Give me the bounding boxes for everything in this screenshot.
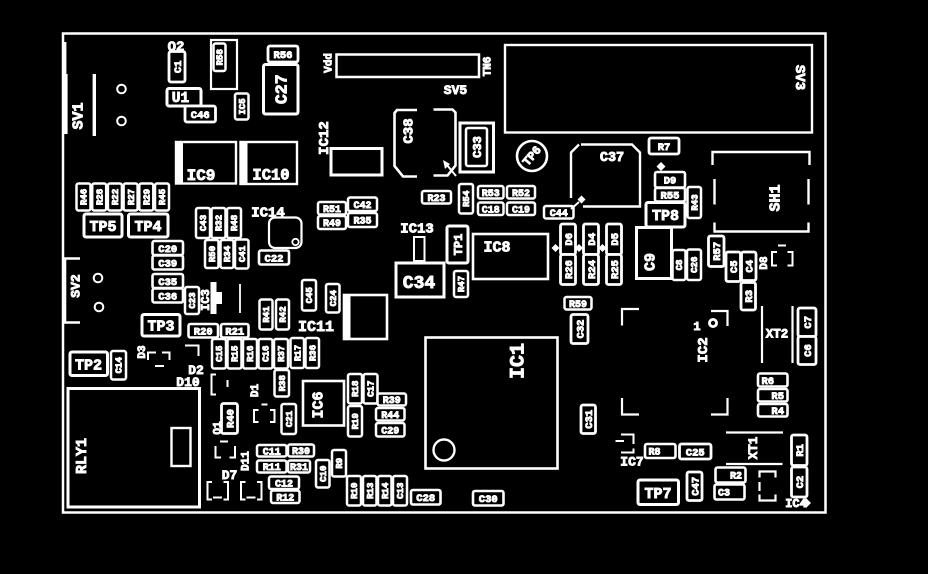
svg-text:R30: R30: [292, 447, 310, 458]
svg-text:C32: C32: [575, 320, 587, 339]
svg-text:C20: C20: [158, 244, 177, 256]
svg-text:R20: R20: [194, 327, 213, 339]
svg-text:C27: C27: [273, 74, 292, 104]
svg-text:C31: C31: [584, 410, 596, 429]
svg-text:C22: C22: [265, 253, 284, 265]
svg-text:R2: R2: [730, 472, 742, 483]
svg-text:IC9: IC9: [187, 167, 216, 185]
svg-text:C19: C19: [512, 205, 530, 216]
svg-text:C8: C8: [675, 260, 685, 271]
svg-text:C35: C35: [158, 277, 177, 289]
svg-text:R42: R42: [279, 306, 289, 322]
svg-text:IC8: IC8: [483, 239, 510, 256]
svg-text:C6: C6: [803, 344, 815, 357]
svg-text:R9: R9: [335, 458, 345, 469]
svg-text:R24: R24: [587, 260, 599, 279]
svg-text:TP8: TP8: [652, 208, 679, 225]
svg-text:SV3: SV3: [791, 65, 807, 90]
svg-text:R28: R28: [95, 189, 105, 205]
svg-text:C41: C41: [238, 245, 248, 262]
svg-text:TP2: TP2: [75, 357, 102, 374]
svg-text:D7: D7: [222, 468, 238, 483]
svg-text:R19: R19: [351, 413, 361, 429]
svg-text:R14: R14: [381, 482, 391, 499]
svg-text:R6: R6: [762, 376, 775, 388]
svg-text:TP3: TP3: [147, 318, 174, 335]
svg-text:TP1: TP1: [452, 234, 466, 256]
svg-text:R21: R21: [225, 327, 244, 339]
svg-text:R38: R38: [278, 375, 288, 391]
svg-text:SH1: SH1: [767, 184, 784, 211]
svg-text:RLY1: RLY1: [74, 438, 91, 474]
svg-text:R13: R13: [366, 483, 376, 499]
svg-text:SV2: SV2: [69, 274, 84, 298]
svg-text:R17: R17: [293, 345, 303, 361]
svg-text:R59: R59: [569, 300, 587, 311]
svg-text:R7: R7: [658, 142, 671, 154]
svg-text:C30: C30: [479, 494, 498, 506]
svg-text:R18: R18: [351, 381, 361, 397]
svg-text:R50: R50: [208, 246, 218, 262]
svg-text:R11: R11: [263, 463, 281, 474]
svg-text:IC1: IC1: [508, 343, 531, 379]
svg-text:C29: C29: [381, 426, 399, 437]
svg-text:R40: R40: [225, 409, 237, 428]
svg-text:R48: R48: [230, 215, 240, 231]
svg-text:IC6: IC6: [310, 391, 327, 418]
svg-text:SV5: SV5: [444, 83, 468, 98]
svg-text:R10: R10: [350, 483, 360, 499]
svg-text:C5: C5: [729, 260, 741, 273]
svg-text:TP7: TP7: [644, 486, 671, 503]
svg-text:R43: R43: [690, 194, 700, 210]
svg-text:C42: C42: [353, 201, 371, 212]
svg-text:C43: C43: [199, 215, 209, 231]
svg-text:IC5: IC5: [238, 98, 248, 114]
svg-text:D8: D8: [759, 256, 771, 270]
svg-text:C34: C34: [403, 274, 436, 294]
svg-text:R53: R53: [482, 189, 500, 200]
svg-text:C7: C7: [803, 316, 815, 329]
svg-text:C15: C15: [215, 346, 225, 362]
svg-text:C28: C28: [416, 493, 435, 505]
svg-text:IC14: IC14: [251, 206, 285, 222]
svg-text:R23: R23: [427, 194, 445, 205]
svg-text:C45: C45: [305, 287, 315, 303]
svg-text:IC10: IC10: [252, 167, 289, 185]
svg-text:R58: R58: [216, 49, 226, 65]
svg-text:R47: R47: [457, 276, 467, 292]
svg-text:D1: D1: [250, 384, 262, 398]
svg-text:R16: R16: [246, 346, 256, 362]
svg-text:Vdd: Vdd: [323, 53, 335, 73]
svg-text:TP5: TP5: [89, 219, 116, 236]
svg-text:C24: C24: [329, 290, 339, 307]
svg-text:C16: C16: [262, 346, 272, 362]
svg-text:C14: C14: [115, 357, 125, 374]
svg-text:D6: D6: [564, 233, 576, 246]
svg-text:IC13: IC13: [400, 222, 434, 238]
svg-text:R56: R56: [274, 50, 293, 62]
svg-text:R54: R54: [462, 190, 472, 207]
svg-text:R22: R22: [111, 189, 121, 205]
svg-text:R36: R36: [308, 345, 318, 361]
svg-text:R26: R26: [564, 260, 576, 279]
svg-text:C21: C21: [285, 410, 295, 427]
svg-text:XT2: XT2: [766, 328, 789, 342]
svg-text:R39: R39: [383, 396, 401, 407]
svg-text:TP4: TP4: [134, 219, 161, 236]
svg-text:C36: C36: [158, 291, 177, 303]
svg-text:IC11: IC11: [298, 319, 334, 336]
svg-text:C3: C3: [718, 489, 730, 500]
svg-text:C44: C44: [550, 209, 568, 220]
svg-text:C17: C17: [367, 381, 377, 397]
svg-text:R1: R1: [795, 444, 807, 457]
svg-text:C47: C47: [690, 477, 702, 496]
svg-text:R41: R41: [262, 306, 272, 323]
svg-text:C33: C33: [471, 136, 485, 158]
svg-text:R46: R46: [80, 189, 90, 205]
svg-text:C4: C4: [745, 260, 757, 273]
svg-text:R35: R35: [353, 217, 371, 228]
svg-text:R34: R34: [223, 245, 233, 262]
svg-text:C10: C10: [319, 466, 329, 482]
svg-text:R52: R52: [512, 189, 530, 200]
svg-text:R29: R29: [143, 189, 153, 205]
svg-text:R8: R8: [649, 448, 661, 459]
svg-text:R51: R51: [323, 205, 341, 216]
svg-text:R25: R25: [610, 260, 622, 279]
svg-text:R37: R37: [277, 346, 287, 362]
svg-text:R3: R3: [744, 290, 756, 303]
svg-text:C23: C23: [188, 292, 198, 308]
svg-text:C37: C37: [600, 151, 624, 166]
svg-text:R44: R44: [381, 411, 399, 422]
svg-text:C25: C25: [686, 447, 705, 459]
svg-text:R12: R12: [276, 493, 294, 504]
svg-text:IC2: IC2: [696, 337, 712, 362]
svg-text:D9: D9: [664, 176, 677, 188]
svg-text:C2: C2: [795, 476, 807, 489]
svg-text:TN6: TN6: [482, 57, 494, 77]
svg-text:C9: C9: [642, 253, 659, 271]
svg-text:C1: C1: [173, 60, 185, 73]
svg-text:C18: C18: [482, 205, 500, 216]
svg-text:R49: R49: [323, 219, 341, 230]
svg-text:R5: R5: [771, 391, 784, 403]
svg-text:R57: R57: [712, 242, 724, 261]
svg-text:R31: R31: [290, 463, 308, 474]
svg-text:C26: C26: [690, 257, 700, 273]
svg-text:1: 1: [693, 320, 700, 334]
svg-text:R55: R55: [661, 191, 680, 203]
svg-text:C46: C46: [191, 110, 210, 122]
svg-text:R27: R27: [127, 189, 137, 205]
svg-text:IC7: IC7: [620, 455, 643, 470]
svg-text:C12: C12: [275, 479, 293, 490]
svg-text:XT1: XT1: [747, 437, 761, 460]
svg-text:C38: C38: [402, 118, 418, 143]
svg-text:R15: R15: [231, 346, 241, 362]
svg-text:D4: D4: [587, 233, 599, 246]
svg-text:R4: R4: [771, 406, 784, 418]
svg-text:C13: C13: [396, 483, 406, 499]
svg-text:R32: R32: [215, 215, 225, 231]
svg-text:D11: D11: [240, 451, 252, 471]
svg-text:C11: C11: [263, 447, 281, 458]
svg-text:R45: R45: [158, 189, 168, 205]
svg-text:SV1: SV1: [70, 102, 87, 129]
svg-text:D5: D5: [610, 233, 622, 246]
svg-text:C39: C39: [158, 258, 177, 270]
